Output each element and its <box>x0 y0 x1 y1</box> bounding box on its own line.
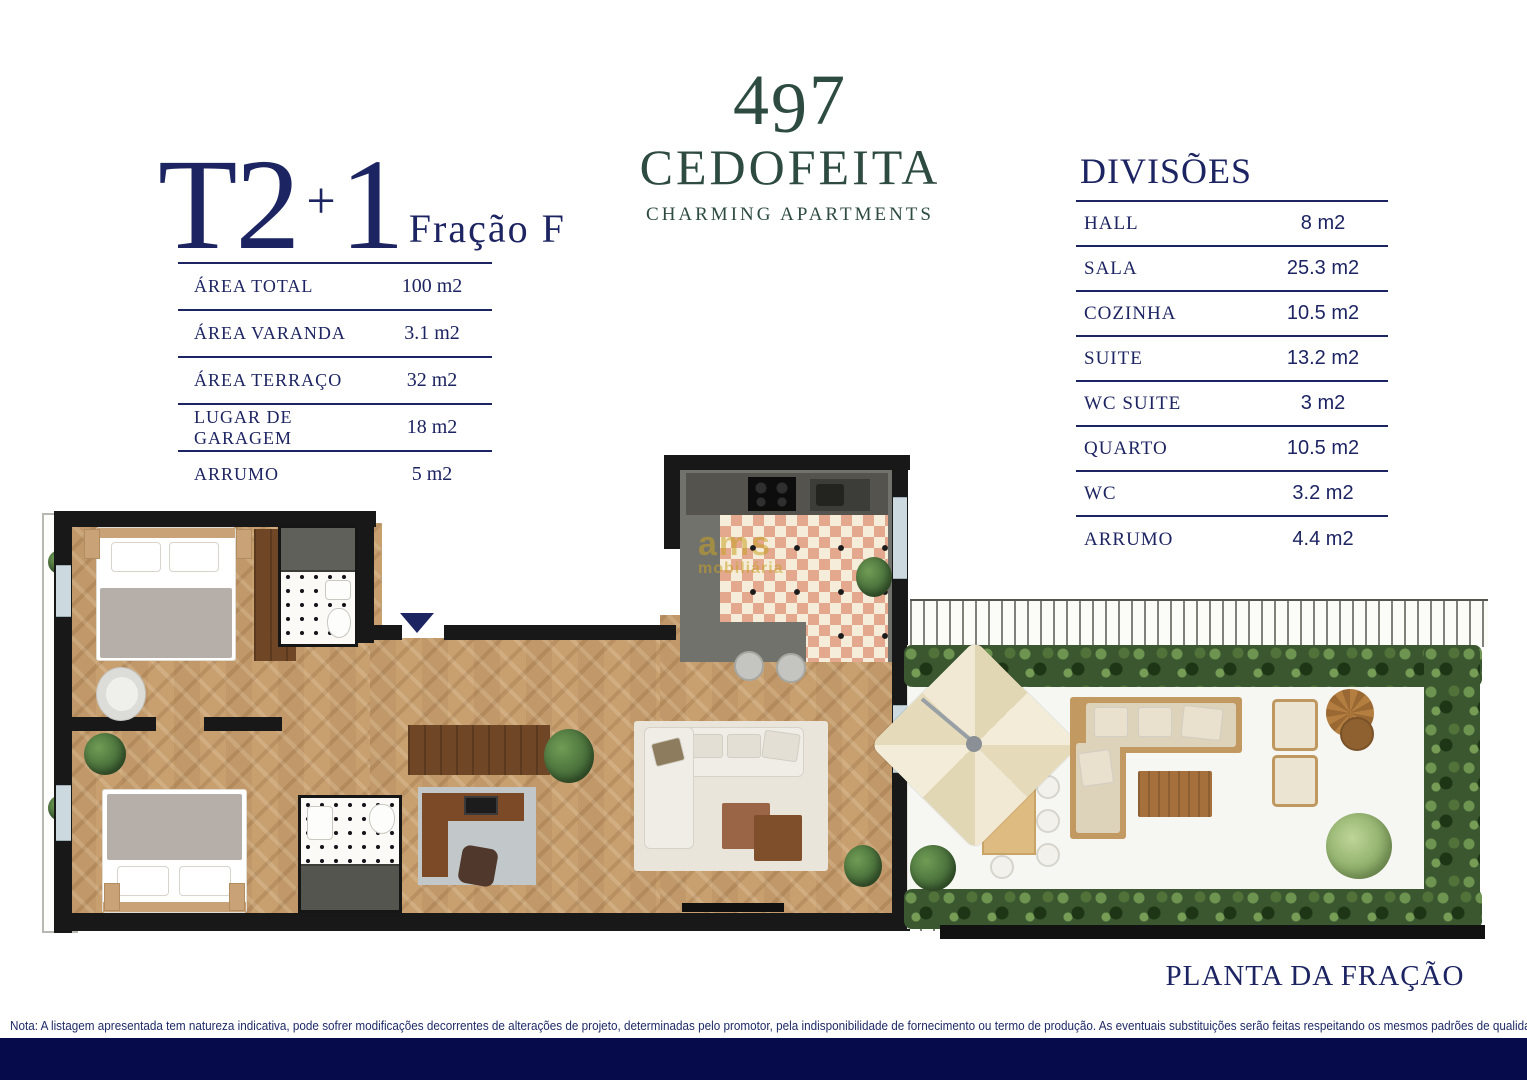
table-row: ÁREA VARANDA 3.1 m2 <box>178 309 492 356</box>
wall <box>664 455 680 549</box>
area-row-label: LUGAR DE GARAGEM <box>178 407 372 449</box>
outdoor-armchair <box>1272 699 1318 751</box>
coffee-table <box>754 815 802 861</box>
area-row-value: 3.1 m2 <box>372 322 492 345</box>
terrace-wall <box>940 925 1485 939</box>
nightstand <box>104 883 120 911</box>
outdoor-sofa <box>1086 703 1236 747</box>
toilet <box>327 608 351 638</box>
window <box>56 785 71 841</box>
division-label: WC SUITE <box>1076 393 1258 415</box>
floorplan-sheet: { "title": { "main": "T2", "plus": "+", … <box>0 0 1527 1080</box>
divisions-heading: DIVISÕES <box>1076 150 1388 192</box>
division-value: 8 m2 <box>1258 212 1388 235</box>
round-side-table <box>1340 717 1374 751</box>
sofa-pillow <box>1180 705 1223 741</box>
dining-chair <box>1036 809 1060 833</box>
kitchen-sink <box>810 479 870 511</box>
headboard <box>97 528 235 538</box>
unit-type-label: T2 <box>158 140 298 270</box>
disclaimer-note: Nota: A listagem apresentada tem naturez… <box>10 1018 1527 1033</box>
brand-number: 497 <box>610 64 970 136</box>
brand-digit: 7 <box>809 60 847 140</box>
umbrella-pole <box>966 736 982 752</box>
window <box>56 565 71 617</box>
table-row: COZINHA 10.5 m2 <box>1076 292 1388 337</box>
area-row-value: 32 m2 <box>372 369 492 392</box>
sink <box>307 806 333 840</box>
plan-caption: PLANTA DA FRAÇÃO <box>1150 960 1480 993</box>
pillow <box>169 542 219 572</box>
division-label: HALL <box>1076 213 1258 235</box>
footer-bar <box>0 1038 1527 1080</box>
floor-plan: ams mobiliária <box>40 455 1500 947</box>
table-row: SALA 25.3 m2 <box>1076 247 1388 292</box>
sofa-cushion <box>727 734 761 758</box>
division-value: 3 m2 <box>1258 392 1388 415</box>
outdoor-armchair <box>1272 755 1318 807</box>
entry-arrow-icon <box>400 613 434 633</box>
brand-logo: 497 CEDOFEITA CHARMING APARTMENTS <box>610 64 970 226</box>
fraction-label: Fração F <box>409 205 566 252</box>
sink <box>325 580 351 600</box>
division-label: SALA <box>1076 258 1258 280</box>
sofa-pillow <box>651 737 686 768</box>
bed <box>102 789 247 913</box>
sideboard <box>408 725 550 775</box>
blanket <box>107 794 242 860</box>
hall-plant <box>544 729 594 783</box>
brand-tagline: CHARMING APARTMENTS <box>610 204 970 226</box>
monitor <box>464 796 498 815</box>
pillow <box>117 866 169 896</box>
outdoor-coffee-table <box>1138 771 1212 817</box>
wall <box>358 625 402 640</box>
table-row: HALL 8 m2 <box>1076 202 1388 247</box>
table-row: LUGAR DE GARAGEM 18 m2 <box>178 403 492 450</box>
sofa-pillow <box>1138 707 1172 737</box>
sofa-cushion <box>761 730 801 763</box>
division-value: 13.2 m2 <box>1258 347 1388 370</box>
watermark-text: mobiliária <box>698 561 828 577</box>
area-row-label: ÁREA VARANDA <box>178 323 372 344</box>
sofa-pillow <box>1078 749 1114 787</box>
brand-name: CEDOFEITA <box>610 142 970 192</box>
division-label: COZINHA <box>1076 303 1258 325</box>
bathroom <box>298 795 402 913</box>
nightstand <box>229 883 245 911</box>
toilet <box>369 804 395 834</box>
cooktop <box>748 477 796 511</box>
nightstand <box>236 529 252 559</box>
sink-basin <box>816 484 844 506</box>
desk <box>422 793 448 877</box>
shower <box>301 864 399 910</box>
blanket <box>100 588 232 658</box>
terrace-tree <box>1326 813 1392 879</box>
watermark-text: ams <box>698 527 828 561</box>
armchair <box>96 667 146 721</box>
armchair-seat <box>106 677 138 711</box>
area-row-value: 18 m2 <box>372 416 492 439</box>
table-row: WC SUITE 3 m2 <box>1076 382 1388 427</box>
terrace-plant <box>910 845 956 891</box>
wall <box>54 913 910 931</box>
shower <box>281 528 355 572</box>
sofa-cushion <box>689 734 723 758</box>
nightstand <box>84 529 100 559</box>
terrace-hedge <box>904 889 1482 929</box>
stool <box>776 653 806 683</box>
terrace-railing <box>910 599 1488 647</box>
stool <box>734 651 764 681</box>
sofa-pillow <box>1094 707 1128 737</box>
unit-plus-sign: + <box>306 172 335 231</box>
desk-chair <box>457 844 499 888</box>
window <box>893 497 907 579</box>
table-row: ÁREA TOTAL 100 m2 <box>178 262 492 309</box>
living-plant <box>844 845 882 887</box>
dining-chair <box>1036 843 1060 867</box>
division-value: 25.3 m2 <box>1258 257 1388 280</box>
area-row-value: 100 m2 <box>372 275 492 298</box>
table-row: ÁREA TERRAÇO 32 m2 <box>178 356 492 403</box>
area-row-label: ÁREA TERRAÇO <box>178 370 372 391</box>
bedroom-plant <box>84 733 126 775</box>
outdoor-sofa <box>1076 743 1120 833</box>
area-row-label: ÁREA TOTAL <box>178 276 372 297</box>
pillow <box>111 542 161 572</box>
unit-title: T2 + 1 Fração F <box>158 140 566 270</box>
pillow <box>179 866 231 896</box>
table-row: SUITE 13.2 m2 <box>1076 337 1388 382</box>
tv <box>682 903 784 912</box>
wall <box>358 511 374 643</box>
brand-digit: 4 <box>733 60 771 140</box>
unit-plus-one: 1 <box>340 140 405 270</box>
brand-digit: 9 <box>771 72 809 144</box>
sofa <box>644 727 694 849</box>
wall <box>444 625 676 640</box>
wall <box>204 717 282 731</box>
bed <box>96 527 236 661</box>
division-value: 10.5 m2 <box>1258 302 1388 325</box>
dining-chair <box>990 855 1014 879</box>
division-label: SUITE <box>1076 348 1258 370</box>
terrace-hedge <box>1424 645 1480 929</box>
headboard <box>103 902 246 912</box>
suite-bathroom <box>278 525 358 647</box>
kitchen-plant <box>856 557 892 597</box>
wall <box>664 455 910 470</box>
watermark: ams mobiliária <box>698 527 828 577</box>
